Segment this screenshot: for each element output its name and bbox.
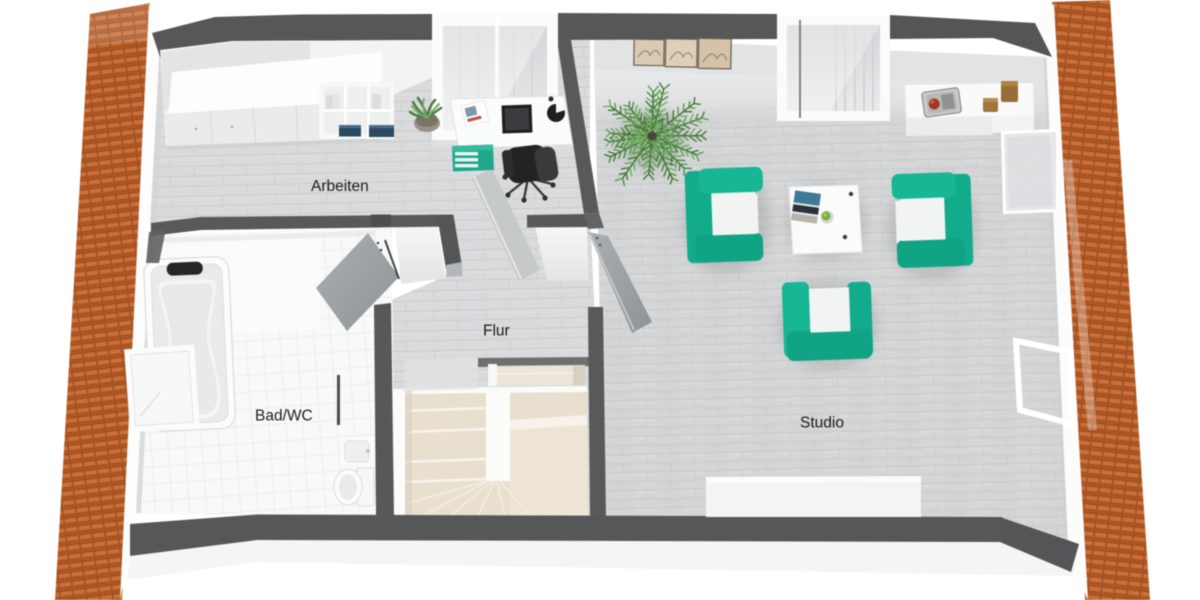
svg-text:Studio: Studio: [800, 415, 844, 432]
svg-text:Flur: Flur: [483, 323, 510, 340]
svg-text:Bad/WC: Bad/WC: [255, 408, 313, 425]
svg-text:Arbeiten: Arbeiten: [311, 178, 369, 195]
